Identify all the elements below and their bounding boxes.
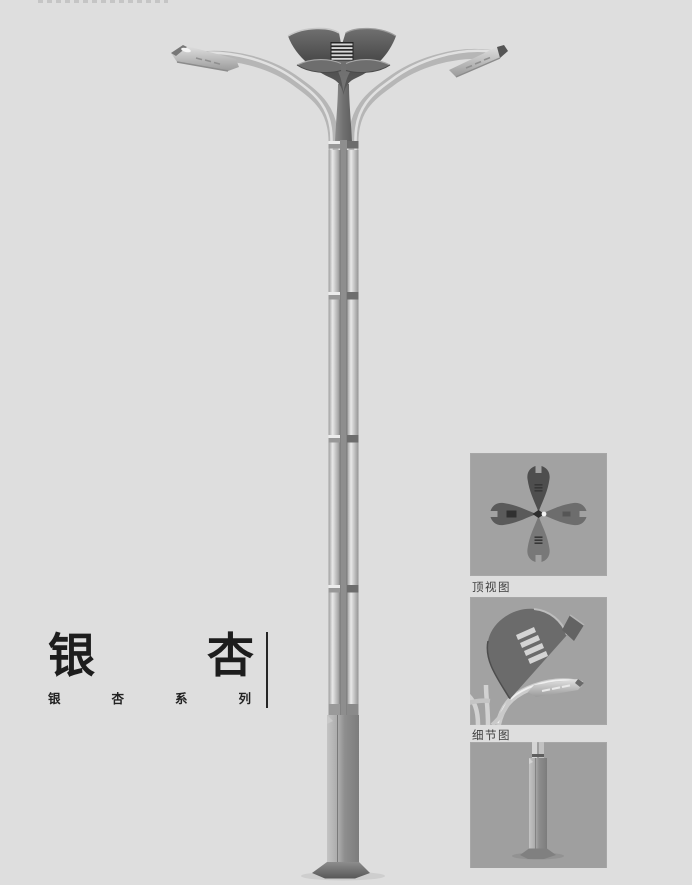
lamp-pole bbox=[329, 140, 359, 716]
subtitle-char: 杏 bbox=[111, 688, 124, 707]
product-series-subtitle: 银 杏 系 列 bbox=[48, 688, 251, 707]
ginkgo-lamp-top-view-image bbox=[470, 453, 607, 576]
detail-panel-head-close-up bbox=[470, 597, 607, 725]
subtitle-char: 银 bbox=[48, 688, 61, 707]
left-luminaire bbox=[171, 45, 239, 71]
detail-panel-top-view bbox=[470, 453, 607, 576]
base-plate bbox=[312, 862, 370, 879]
lamp-pole-base-image bbox=[470, 742, 607, 868]
title-char: 杏 bbox=[207, 630, 254, 682]
subtitle-char: 系 bbox=[175, 688, 188, 707]
catalog-page: 银 杏 银 杏 系 列 bbox=[0, 0, 692, 885]
product-title: 银 杏 bbox=[48, 630, 254, 682]
title-divider-line bbox=[266, 632, 268, 708]
base-column bbox=[529, 758, 547, 852]
ginkgo-lamp-head-detail-image bbox=[470, 597, 607, 725]
caption-top-view: 顶视图 bbox=[472, 579, 511, 595]
detail-panel-base-close-up bbox=[470, 742, 607, 868]
product-title-block: 银 杏 银 杏 系 列 bbox=[48, 630, 270, 710]
crown-vent-grille bbox=[331, 42, 354, 61]
caption-detail-view: 细节图 bbox=[472, 727, 511, 743]
pole-base bbox=[301, 715, 385, 881]
subtitle-char: 列 bbox=[238, 688, 251, 707]
title-char: 银 bbox=[48, 630, 95, 682]
